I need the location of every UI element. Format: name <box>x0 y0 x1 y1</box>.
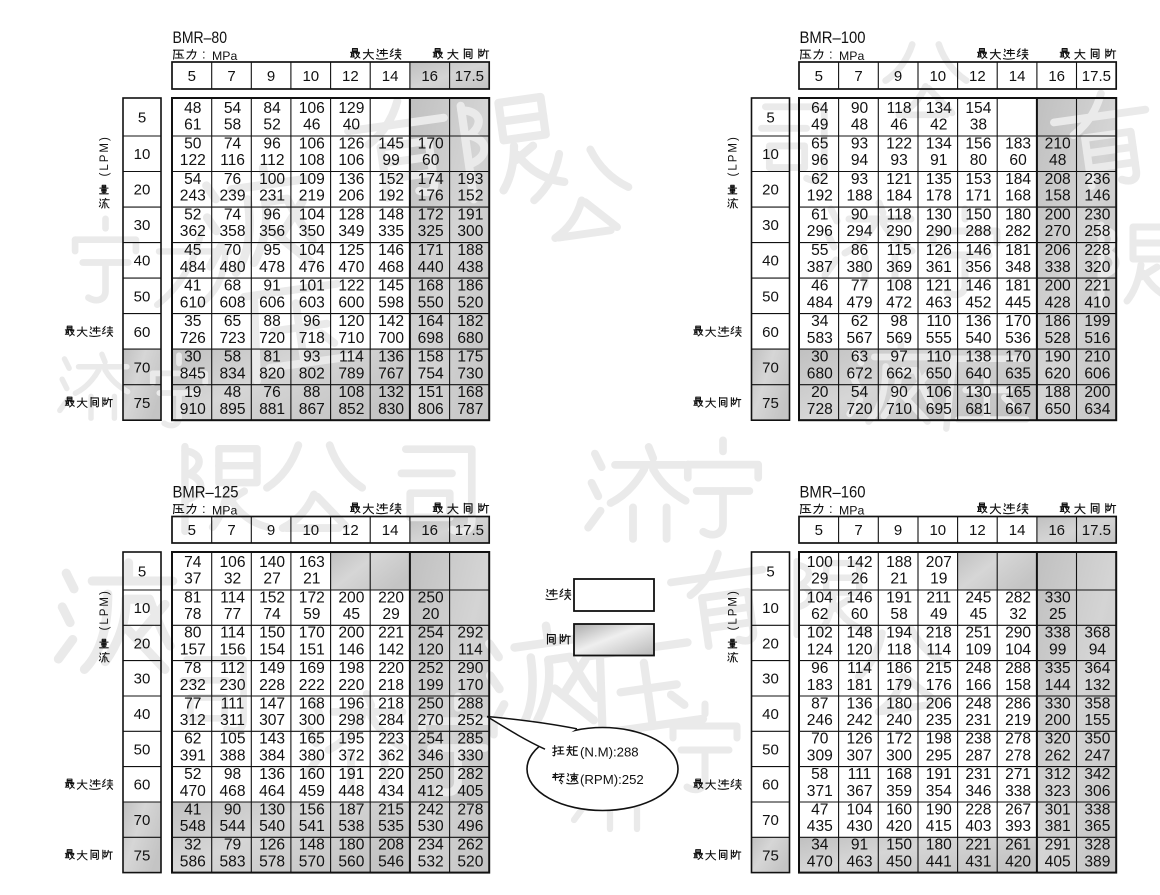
svg-text:220: 220 <box>338 677 364 694</box>
svg-text:146: 146 <box>1084 188 1110 205</box>
svg-text:170: 170 <box>1005 349 1031 366</box>
svg-text:210: 210 <box>1045 135 1071 152</box>
svg-text:346: 346 <box>418 748 444 765</box>
svg-text:165: 165 <box>299 731 325 748</box>
svg-text:62: 62 <box>811 606 828 623</box>
svg-text:181: 181 <box>846 677 872 694</box>
svg-text:288: 288 <box>457 695 483 712</box>
svg-text:46: 46 <box>303 116 320 133</box>
svg-text:802: 802 <box>299 365 325 382</box>
svg-text:350: 350 <box>299 223 325 240</box>
svg-text:74: 74 <box>224 135 242 152</box>
svg-text:220: 220 <box>378 660 404 677</box>
svg-text:476: 476 <box>299 259 325 276</box>
svg-text:235: 235 <box>926 712 952 729</box>
svg-text:188: 188 <box>457 242 483 259</box>
svg-text:29: 29 <box>382 606 399 623</box>
svg-text:358: 358 <box>1084 695 1110 712</box>
svg-text:174: 174 <box>418 171 444 188</box>
svg-text:95: 95 <box>263 242 281 259</box>
svg-text:445: 445 <box>1005 294 1031 311</box>
svg-text:172: 172 <box>418 207 444 224</box>
svg-text:391: 391 <box>180 748 206 765</box>
svg-text:852: 852 <box>338 401 364 418</box>
svg-text:146: 146 <box>846 589 872 606</box>
svg-text:10: 10 <box>762 146 779 163</box>
svg-text:430: 430 <box>846 818 872 835</box>
svg-text:58: 58 <box>811 766 828 783</box>
svg-text:91: 91 <box>263 278 280 295</box>
svg-text:148: 148 <box>846 625 872 642</box>
svg-text:146: 146 <box>338 642 364 659</box>
svg-text:254: 254 <box>418 625 444 642</box>
svg-text:78: 78 <box>184 606 201 623</box>
svg-text:368: 368 <box>1084 625 1110 642</box>
svg-text:369: 369 <box>886 259 912 276</box>
svg-text:136: 136 <box>846 695 872 712</box>
svg-text:77: 77 <box>184 695 201 712</box>
svg-text:5: 5 <box>766 563 774 580</box>
svg-text:16: 16 <box>1048 68 1065 85</box>
svg-text:87: 87 <box>811 695 828 712</box>
svg-text:158: 158 <box>1005 677 1031 694</box>
svg-text:25: 25 <box>1049 606 1067 623</box>
svg-text:160: 160 <box>886 801 912 818</box>
svg-text:250: 250 <box>418 695 444 712</box>
svg-text:60: 60 <box>762 324 779 341</box>
svg-text:211: 211 <box>926 589 951 606</box>
svg-text:27: 27 <box>263 570 280 587</box>
svg-text:538: 538 <box>338 818 364 835</box>
svg-text:472: 472 <box>886 294 912 311</box>
svg-text:144: 144 <box>1045 677 1071 694</box>
svg-text:845: 845 <box>180 365 206 382</box>
svg-text:93: 93 <box>303 349 320 366</box>
svg-text:362: 362 <box>180 223 206 240</box>
svg-text:149: 149 <box>259 660 285 677</box>
svg-text:560: 560 <box>338 854 364 871</box>
svg-text:338: 338 <box>1045 259 1071 276</box>
svg-text:178: 178 <box>926 188 952 205</box>
svg-text:70: 70 <box>134 359 151 376</box>
svg-text:672: 672 <box>846 365 872 382</box>
svg-text:156: 156 <box>299 801 325 818</box>
svg-text:190: 190 <box>926 801 952 818</box>
svg-text:248: 248 <box>965 660 991 677</box>
svg-text:350: 350 <box>1084 731 1110 748</box>
svg-text:115: 115 <box>887 242 912 259</box>
svg-text:459: 459 <box>299 783 325 800</box>
svg-text:17.5: 17.5 <box>455 68 484 85</box>
svg-text:14: 14 <box>382 522 399 539</box>
svg-text:106: 106 <box>219 554 245 571</box>
svg-text:55: 55 <box>811 242 829 259</box>
svg-text:46: 46 <box>890 116 907 133</box>
svg-text:70: 70 <box>762 812 779 829</box>
svg-text:555: 555 <box>926 330 952 347</box>
svg-text:145: 145 <box>378 278 404 295</box>
svg-text:176: 176 <box>926 677 952 694</box>
svg-text:307: 307 <box>259 712 285 729</box>
svg-text:536: 536 <box>1005 330 1031 347</box>
svg-text:126: 126 <box>338 135 364 152</box>
svg-text:106: 106 <box>299 135 325 152</box>
svg-text:60: 60 <box>134 777 151 794</box>
svg-text:603: 603 <box>299 294 325 311</box>
svg-text:243: 243 <box>180 188 206 205</box>
svg-text:BMR–125: BMR–125 <box>173 484 239 502</box>
svg-text:5: 5 <box>138 109 146 126</box>
svg-text:20: 20 <box>422 606 440 623</box>
svg-text:(N.M):288: (N.M):288 <box>580 745 639 760</box>
svg-text:48: 48 <box>224 384 241 401</box>
svg-text:50: 50 <box>134 741 151 758</box>
svg-text:40: 40 <box>762 253 779 270</box>
svg-text:48: 48 <box>184 100 201 117</box>
svg-text:767: 767 <box>378 365 404 382</box>
svg-text:152: 152 <box>259 589 285 606</box>
svg-text:520: 520 <box>457 294 483 311</box>
svg-text:463: 463 <box>926 294 952 311</box>
svg-text:99: 99 <box>1049 642 1066 659</box>
svg-text:541: 541 <box>299 818 325 835</box>
svg-text:41: 41 <box>184 278 201 295</box>
svg-text:221: 221 <box>378 625 404 642</box>
svg-text:96: 96 <box>303 313 320 330</box>
svg-text:470: 470 <box>807 854 833 871</box>
svg-text:146: 146 <box>378 242 404 259</box>
svg-text:480: 480 <box>219 259 245 276</box>
svg-text:70: 70 <box>762 359 779 376</box>
svg-text:142: 142 <box>378 642 404 659</box>
svg-text:17.5: 17.5 <box>1082 522 1111 539</box>
svg-text:65: 65 <box>811 135 829 152</box>
svg-text::: : <box>829 501 833 516</box>
svg-text:94: 94 <box>851 152 869 169</box>
svg-text:172: 172 <box>886 731 912 748</box>
svg-text:114: 114 <box>458 642 483 659</box>
svg-text:681: 681 <box>965 401 991 418</box>
svg-text:5: 5 <box>188 522 196 539</box>
svg-text:88: 88 <box>263 313 280 330</box>
svg-text:448: 448 <box>338 783 364 800</box>
svg-text:146: 146 <box>965 242 991 259</box>
svg-text:387: 387 <box>807 259 833 276</box>
svg-text:32: 32 <box>184 837 201 854</box>
svg-text:29: 29 <box>811 570 828 587</box>
svg-text:126: 126 <box>926 242 952 259</box>
svg-text:MPa: MPa <box>839 49 864 63</box>
svg-text:96: 96 <box>811 152 828 169</box>
svg-text:136: 136 <box>259 766 285 783</box>
svg-text:172: 172 <box>299 589 325 606</box>
svg-text:230: 230 <box>219 677 245 694</box>
svg-text:124: 124 <box>807 642 833 659</box>
svg-text:60: 60 <box>762 777 779 794</box>
svg-text:32: 32 <box>1009 606 1026 623</box>
svg-text:54: 54 <box>184 171 202 188</box>
svg-text:468: 468 <box>219 783 245 800</box>
svg-text:600: 600 <box>338 294 364 311</box>
svg-text:650: 650 <box>926 365 952 382</box>
svg-text:171: 171 <box>965 188 991 205</box>
svg-text:80: 80 <box>970 152 988 169</box>
svg-text:215: 215 <box>378 801 404 818</box>
svg-text:895: 895 <box>219 401 245 418</box>
svg-text:208: 208 <box>1045 171 1071 188</box>
svg-text:12: 12 <box>969 68 986 85</box>
svg-text:93: 93 <box>890 152 907 169</box>
svg-text:287: 287 <box>965 748 991 765</box>
svg-text:132: 132 <box>378 384 404 401</box>
svg-text:30: 30 <box>762 217 779 234</box>
svg-text:52: 52 <box>184 766 201 783</box>
svg-text:330: 330 <box>1045 589 1071 606</box>
svg-text:320: 320 <box>1084 259 1110 276</box>
svg-text:680: 680 <box>807 365 833 382</box>
svg-text:180: 180 <box>886 695 912 712</box>
svg-text:37: 37 <box>184 570 201 587</box>
svg-text:17.5: 17.5 <box>455 522 484 539</box>
svg-text:168: 168 <box>299 695 325 712</box>
svg-text:65: 65 <box>224 313 242 330</box>
svg-text:74: 74 <box>263 606 281 623</box>
svg-text:787: 787 <box>457 401 483 418</box>
svg-text:188: 188 <box>886 554 912 571</box>
svg-text:192: 192 <box>807 188 833 205</box>
svg-text:60: 60 <box>1009 152 1027 169</box>
svg-text:282: 282 <box>1005 589 1031 606</box>
svg-text:290: 290 <box>1005 625 1031 642</box>
svg-text:91: 91 <box>851 837 868 854</box>
svg-text:288: 288 <box>1005 660 1031 677</box>
svg-text:290: 290 <box>926 223 952 240</box>
svg-text:75: 75 <box>134 847 151 864</box>
svg-text:583: 583 <box>807 330 833 347</box>
svg-text:130: 130 <box>259 801 285 818</box>
svg-text:40: 40 <box>762 706 779 723</box>
svg-text:30: 30 <box>811 349 829 366</box>
svg-text:194: 194 <box>886 625 912 642</box>
svg-text:14: 14 <box>1009 68 1026 85</box>
svg-text:68: 68 <box>224 278 241 295</box>
svg-text:58: 58 <box>224 116 241 133</box>
svg-text:114: 114 <box>220 589 245 606</box>
svg-text:142: 142 <box>846 554 872 571</box>
svg-text:296: 296 <box>807 223 833 240</box>
svg-text:62: 62 <box>851 313 868 330</box>
svg-text:338: 338 <box>1084 801 1110 818</box>
svg-text:MPa: MPa <box>212 504 237 518</box>
svg-text:292: 292 <box>457 625 483 642</box>
svg-text:470: 470 <box>338 259 364 276</box>
svg-text:354: 354 <box>926 783 952 800</box>
svg-text:452: 452 <box>965 294 991 311</box>
svg-text:154: 154 <box>965 100 991 117</box>
svg-text:468: 468 <box>378 259 404 276</box>
svg-text:328: 328 <box>1084 837 1110 854</box>
svg-text:250: 250 <box>418 766 444 783</box>
svg-text:463: 463 <box>846 854 872 871</box>
svg-text:359: 359 <box>886 783 912 800</box>
svg-text:371: 371 <box>807 783 833 800</box>
svg-text:356: 356 <box>965 259 991 276</box>
svg-text:60: 60 <box>851 606 869 623</box>
svg-text:9: 9 <box>267 68 275 85</box>
svg-text:198: 198 <box>338 660 364 677</box>
svg-text:388: 388 <box>219 748 245 765</box>
svg-text:81: 81 <box>184 589 201 606</box>
svg-text:152: 152 <box>378 171 404 188</box>
svg-text:135: 135 <box>926 171 952 188</box>
svg-text:90: 90 <box>890 384 908 401</box>
svg-text:431: 431 <box>965 854 991 871</box>
svg-text:720: 720 <box>259 330 285 347</box>
svg-text:180: 180 <box>926 837 952 854</box>
svg-text:528: 528 <box>1045 330 1071 347</box>
svg-text:93: 93 <box>851 171 868 188</box>
svg-text:20: 20 <box>134 182 151 199</box>
svg-text:700: 700 <box>378 330 404 347</box>
svg-text:306: 306 <box>1084 783 1110 800</box>
svg-text:10: 10 <box>134 146 151 163</box>
svg-text:295: 295 <box>926 748 952 765</box>
svg-text:10: 10 <box>929 68 946 85</box>
svg-text:10: 10 <box>302 522 319 539</box>
svg-text:99: 99 <box>382 152 399 169</box>
svg-text:232: 232 <box>180 677 206 694</box>
svg-text:(LPM): (LPM) <box>99 135 111 176</box>
svg-text:206: 206 <box>338 188 364 205</box>
svg-text:242: 242 <box>418 801 444 818</box>
svg-text:45: 45 <box>184 242 202 259</box>
svg-text:170: 170 <box>1005 313 1031 330</box>
svg-text:312: 312 <box>180 712 206 729</box>
svg-text:184: 184 <box>1005 171 1031 188</box>
svg-text:435: 435 <box>807 818 833 835</box>
svg-text:58: 58 <box>890 606 907 623</box>
svg-text:496: 496 <box>457 818 483 835</box>
svg-text:262: 262 <box>1045 748 1071 765</box>
svg-text:219: 219 <box>299 188 325 205</box>
svg-text:130: 130 <box>965 384 991 401</box>
svg-text:120: 120 <box>418 642 444 659</box>
svg-text:236: 236 <box>1084 171 1110 188</box>
svg-text:294: 294 <box>846 223 872 240</box>
svg-text:356: 356 <box>259 223 285 240</box>
svg-text:428: 428 <box>1045 294 1071 311</box>
svg-text:175: 175 <box>457 349 483 366</box>
svg-text:662: 662 <box>886 365 912 382</box>
svg-text:70: 70 <box>224 242 242 259</box>
svg-text:478: 478 <box>259 259 285 276</box>
svg-text:97: 97 <box>890 349 907 366</box>
svg-text:5: 5 <box>766 109 774 126</box>
svg-text:79: 79 <box>224 837 241 854</box>
svg-text:358: 358 <box>219 223 245 240</box>
svg-text:258: 258 <box>1084 223 1110 240</box>
svg-text:723: 723 <box>219 330 245 347</box>
svg-text:128: 128 <box>338 207 364 224</box>
svg-text:180: 180 <box>338 837 364 854</box>
svg-text:110: 110 <box>926 313 951 330</box>
svg-text:40: 40 <box>134 706 151 723</box>
svg-text:180: 180 <box>1005 207 1031 224</box>
svg-text:50: 50 <box>762 288 779 305</box>
svg-text:195: 195 <box>338 731 364 748</box>
svg-text:191: 191 <box>457 207 483 224</box>
svg-text:74: 74 <box>224 207 242 224</box>
svg-text:695: 695 <box>926 401 952 418</box>
svg-text::: : <box>202 501 206 516</box>
svg-text:102: 102 <box>807 625 833 642</box>
svg-text:484: 484 <box>180 259 206 276</box>
svg-text:730: 730 <box>457 365 483 382</box>
svg-text:12: 12 <box>342 522 359 539</box>
svg-text:207: 207 <box>926 554 952 571</box>
svg-text:440: 440 <box>418 259 444 276</box>
svg-text:17.5: 17.5 <box>1082 68 1111 85</box>
svg-text:77: 77 <box>224 606 241 623</box>
svg-text:215: 215 <box>926 660 952 677</box>
svg-text:41: 41 <box>184 801 201 818</box>
svg-text:109: 109 <box>299 171 325 188</box>
svg-text:307: 307 <box>846 748 872 765</box>
svg-text:586: 586 <box>180 854 206 871</box>
svg-text:104: 104 <box>846 801 872 818</box>
svg-text:567: 567 <box>846 330 872 347</box>
svg-text:247: 247 <box>1084 748 1110 765</box>
svg-text:323: 323 <box>1045 783 1071 800</box>
svg-text:726: 726 <box>180 330 206 347</box>
svg-text:47: 47 <box>811 801 828 818</box>
svg-text:187: 187 <box>338 801 364 818</box>
svg-text:48: 48 <box>851 116 868 133</box>
svg-text:680: 680 <box>457 330 483 347</box>
svg-text:186: 186 <box>1045 313 1071 330</box>
svg-text:438: 438 <box>457 259 483 276</box>
svg-text:96: 96 <box>811 660 828 677</box>
svg-text:86: 86 <box>851 242 868 259</box>
svg-text:5: 5 <box>815 68 823 85</box>
svg-text:46: 46 <box>811 278 828 295</box>
svg-text:45: 45 <box>343 606 361 623</box>
svg-text:145: 145 <box>378 135 404 152</box>
svg-text:176: 176 <box>418 188 444 205</box>
svg-text:166: 166 <box>965 677 991 694</box>
svg-text:160: 160 <box>299 766 325 783</box>
svg-text:338: 338 <box>1005 783 1031 800</box>
svg-text:BMR–100: BMR–100 <box>800 29 866 47</box>
svg-text:806: 806 <box>418 401 444 418</box>
svg-text:125: 125 <box>338 242 364 259</box>
svg-text:248: 248 <box>965 695 991 712</box>
svg-text:415: 415 <box>926 818 952 835</box>
svg-text:12: 12 <box>342 68 359 85</box>
svg-text:206: 206 <box>1045 242 1071 259</box>
svg-text:104: 104 <box>1005 642 1031 659</box>
svg-text:362: 362 <box>378 748 404 765</box>
svg-text:650: 650 <box>1045 401 1071 418</box>
svg-text:278: 278 <box>1005 748 1031 765</box>
svg-text:540: 540 <box>259 818 285 835</box>
svg-text:330: 330 <box>1045 695 1071 712</box>
svg-text:405: 405 <box>1045 854 1071 871</box>
svg-text:30: 30 <box>134 217 151 234</box>
svg-text:(LPM): (LPM) <box>99 589 111 630</box>
svg-text:142: 142 <box>378 313 404 330</box>
svg-text:380: 380 <box>299 748 325 765</box>
